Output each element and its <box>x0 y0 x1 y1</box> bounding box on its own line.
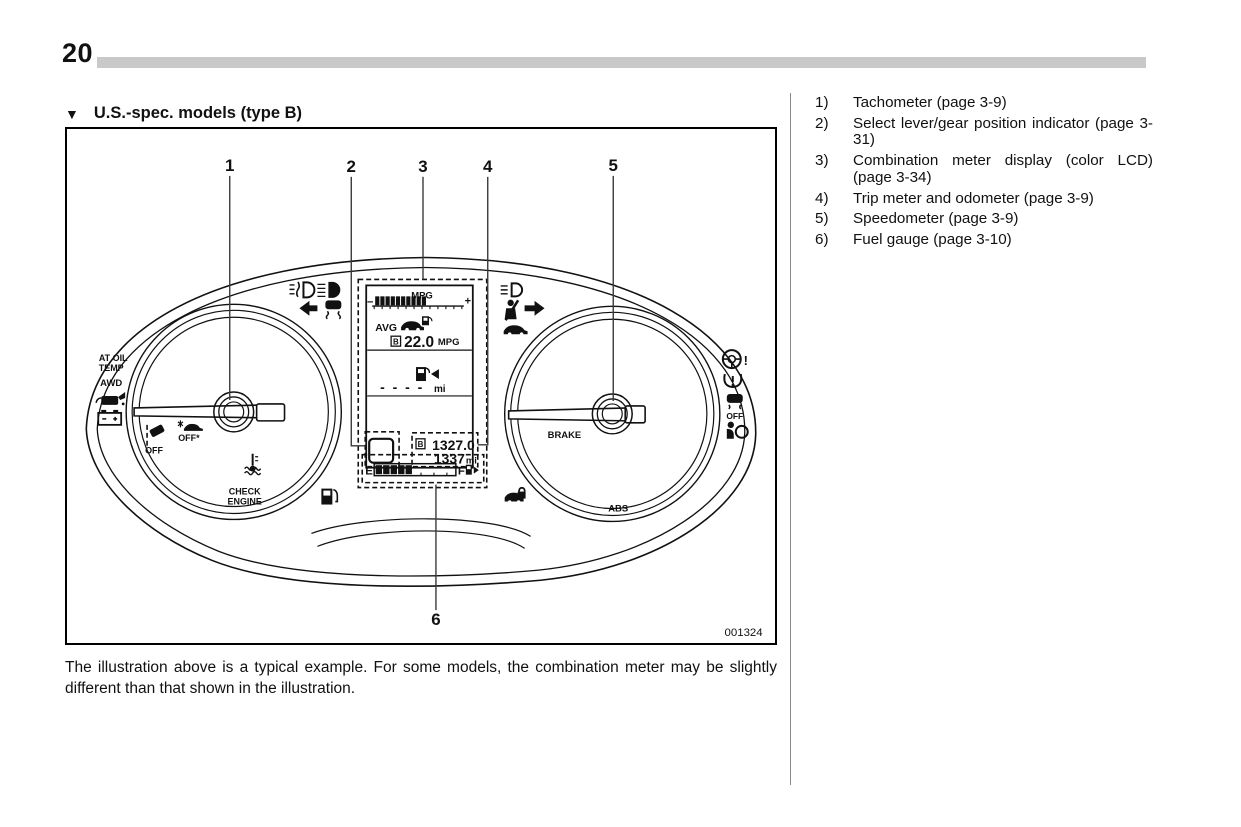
speedometer-needle <box>509 406 645 423</box>
callout-4: 4 <box>483 157 493 176</box>
vdc-off-icon: OFF <box>726 394 743 421</box>
legend-item-number: 5) <box>815 211 853 228</box>
battery-icon <box>98 410 121 425</box>
trip-odometer-readout: B 1327.0 1337 mi <box>412 433 478 467</box>
lcd-avg-label: AVG <box>375 323 397 334</box>
legend-item-number: 2) <box>815 116 853 149</box>
avg-consumption-readout: B 22.0 MPG <box>391 334 459 351</box>
turn-signal-right-icon <box>525 301 545 316</box>
eyesight-off-label: OFF* <box>178 433 200 443</box>
range-arrow-icon <box>431 369 439 379</box>
fuel-filler-side-arrow <box>474 467 479 474</box>
fuel-f-label: F <box>458 466 465 478</box>
legend-item-number: 3) <box>815 153 853 186</box>
avg-value: 22.0 <box>404 334 434 351</box>
fog-light-icon <box>290 282 315 297</box>
high-beam-icon <box>501 283 522 296</box>
steering-warning-excl: ! <box>744 353 748 368</box>
speedometer-gauge: BRAKE ABS <box>505 306 720 521</box>
legend-item: 2) Select lever/gear position indicator … <box>815 116 1153 149</box>
lcd-display: MPG − + AVG B 22.0 <box>358 279 487 487</box>
brake-label: BRAKE <box>548 430 582 441</box>
low-fuel-icon <box>321 489 337 505</box>
check-engine-label2: ENGINE <box>228 497 262 507</box>
oil-pressure-icon <box>96 392 125 405</box>
avg-b-indicator: B <box>393 337 399 346</box>
turn-signal-left-icon <box>299 301 317 316</box>
at-oil-temp-label: AT OIL <box>99 353 128 363</box>
triangle-marker: ▼ <box>65 106 79 122</box>
legend-item: 5) Speedometer (page 3-9) <box>815 211 1153 228</box>
figure-id: 001324 <box>724 627 763 639</box>
legend-item-text: Speedometer (page 3-9) <box>853 211 1153 228</box>
gear-position-indicator <box>365 432 399 467</box>
steering-warning-icon: ! <box>723 350 748 368</box>
fuel-e-label: E <box>365 466 373 478</box>
figure-caption: The illustration above is a typical exam… <box>65 657 777 699</box>
headlight-icon <box>317 282 340 298</box>
left-telltale-column: AT OIL TEMP AWD <box>96 353 128 425</box>
legend-item: 3) Combination meter display (color LCD)… <box>815 153 1153 186</box>
legend-item: 6) Fuel gauge (page 3-10) <box>815 232 1153 249</box>
mpg-bar-plus: + <box>465 295 471 307</box>
range-unit: mi <box>434 384 446 395</box>
range-readout: - - - - mi <box>380 367 446 395</box>
callout-3: 3 <box>418 157 427 176</box>
cluster-illustration: BRAKE ABS AT OIL TEMP AWD OFF OFF* <box>67 129 775 643</box>
security-indicator-icon <box>505 488 526 504</box>
column-separator <box>790 93 791 785</box>
seatbelt-icon <box>505 300 518 321</box>
legend-item-text: Combination meter display (color LCD) (p… <box>853 153 1153 186</box>
vdc-off-label: OFF <box>726 411 743 421</box>
abs-label: ABS <box>608 504 628 515</box>
callout-5: 5 <box>609 156 618 175</box>
eyesight-off-icon: OFF* <box>178 420 203 442</box>
legend-item-text: Trip meter and odometer (page 3-9) <box>853 191 1153 208</box>
avg-unit: MPG <box>438 337 460 348</box>
legend-item-number: 4) <box>815 191 853 208</box>
check-engine-label: CHECK <box>229 487 261 497</box>
fuel-pump-icon <box>466 465 472 475</box>
vdc-operation-icon <box>325 300 341 318</box>
legend-item-text: Select lever/gear position indicator (pa… <box>853 116 1153 149</box>
lane-departure-off-label: OFF <box>145 446 163 456</box>
section-title: U.S.-spec. models (type B) <box>94 104 302 123</box>
awd-label: AWD <box>100 378 122 389</box>
mpg-bar-graph: − + <box>367 295 471 309</box>
tachometer-needle <box>134 404 284 421</box>
callout-1: 1 <box>225 156 234 175</box>
at-oil-temp-label2: TEMP <box>99 363 124 373</box>
trip-b-indicator: B <box>418 440 424 449</box>
header-rule <box>97 57 1146 68</box>
legend-list: 1) Tachometer (page 3-9) 2) Select lever… <box>815 95 1153 253</box>
car-fuel-icon <box>401 316 432 331</box>
page-number: 20 <box>62 38 93 69</box>
callout-6: 6 <box>431 610 440 629</box>
legend-item: 1) Tachometer (page 3-9) <box>815 95 1153 112</box>
legend-item-text: Tachometer (page 3-9) <box>853 95 1153 112</box>
tpms-icon <box>724 374 741 387</box>
section-heading: ▼ U.S.-spec. models (type B) <box>65 104 302 123</box>
range-value: - - - - <box>380 379 424 395</box>
coolant-temp-icon <box>245 454 261 475</box>
callout-2: 2 <box>347 157 356 176</box>
legend-item: 4) Trip meter and odometer (page 3-9) <box>815 191 1153 208</box>
legend-item-text: Fuel gauge (page 3-10) <box>853 232 1153 249</box>
car-warning-icon <box>504 325 528 336</box>
lane-departure-off-icon: OFF <box>145 424 165 456</box>
figure-box: BRAKE ABS AT OIL TEMP AWD OFF OFF* <box>65 127 777 645</box>
legend-item-number: 1) <box>815 95 853 112</box>
legend-item-number: 6) <box>815 232 853 249</box>
